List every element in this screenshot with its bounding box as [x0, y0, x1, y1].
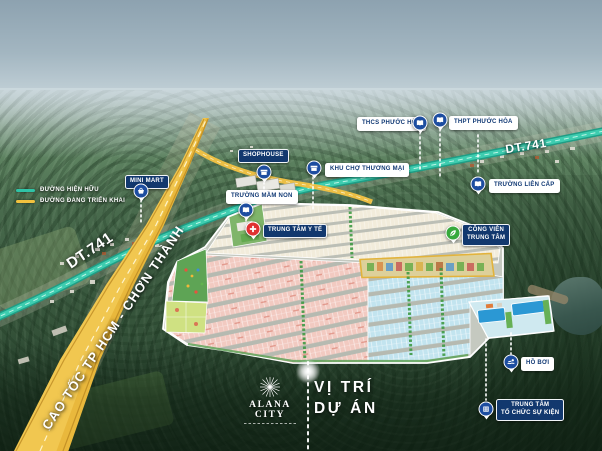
alana-city-logo: ALANA CITY [237, 375, 303, 424]
event-building-icon [482, 405, 491, 414]
badge-shophouse: SHOPHOUSE [238, 149, 289, 163]
medical-cross-icon [249, 225, 258, 234]
legend-item-road-under-development: ĐƯỜNG ĐANG TRIỂN KHAI [16, 198, 125, 204]
school-icon [242, 206, 251, 215]
logo-tagline [244, 423, 296, 425]
shop-icon [310, 164, 319, 173]
pin-thpt-phuoc-hoa [433, 113, 448, 128]
pin-mini-mart [134, 184, 149, 199]
project-location-label: VỊ TRÍ DỰ ÁN [314, 378, 378, 420]
badge-khu-cho-thuong-mai: KHU CHỢ THƯƠNG MẠI [325, 163, 409, 177]
school-icon [474, 180, 483, 189]
pin-trung-tam-to-chuc-su-kien [479, 402, 494, 417]
pin-thcs-phuoc-hoa [413, 116, 428, 131]
pin-truong-mam-non [239, 203, 254, 218]
shop-icon [260, 168, 269, 177]
legend-label: ĐƯỜNG HIỆN HỮU [40, 187, 99, 193]
badge-cong-vien-trung-tam: CÔNG VIÊN TRUNG TÂM [462, 224, 510, 246]
developing-road-swatch [16, 200, 35, 203]
pin-truong-lien-cap [471, 177, 486, 192]
shop-icon [137, 187, 146, 196]
swimmer-icon [507, 358, 516, 367]
pin-ho-boi [504, 355, 519, 370]
pin-cong-vien-trung-tam [446, 226, 461, 241]
legend-item-existing-road: ĐƯỜNG HIỆN HỮU [16, 187, 125, 193]
pin-khu-cho-thuong-mai [307, 161, 322, 176]
badge-trung-tam-to-chuc-su-kien: TRUNG TÂM TỔ CHỨC SỰ KIỆN [496, 399, 564, 421]
badge-truong-lien-cap: TRƯỜNG LIÊN CẤP [489, 179, 560, 193]
legend: ĐƯỜNG HIỆN HỮU ĐƯỜNG ĐANG TRIỂN KHAI [16, 187, 125, 209]
brand-name: ALANA CITY [237, 400, 303, 420]
legend-label: ĐƯỜNG ĐANG TRIỂN KHAI [40, 198, 125, 204]
badge-ho-boi: HỒ BƠI [521, 357, 554, 371]
badge-truong-mam-non: TRƯỜNG MẦM NON [226, 190, 298, 204]
school-icon [436, 116, 445, 125]
existing-road-swatch [16, 189, 35, 192]
badge-trung-tam-y-te: TRUNG TÂM Y TẾ [263, 224, 327, 238]
starburst-icon [257, 375, 283, 399]
badge-thpt-phuoc-hoa: THPT PHƯỚC HÒA [449, 116, 518, 130]
aerial-location-map: ĐƯỜNG HIỆN HỮU ĐƯỜNG ĐANG TRIỂN KHAI CAO… [0, 0, 602, 451]
leaf-icon [449, 229, 458, 238]
pin-shophouse [257, 165, 272, 180]
school-icon [416, 119, 425, 128]
pin-trung-tam-y-te [246, 222, 261, 237]
